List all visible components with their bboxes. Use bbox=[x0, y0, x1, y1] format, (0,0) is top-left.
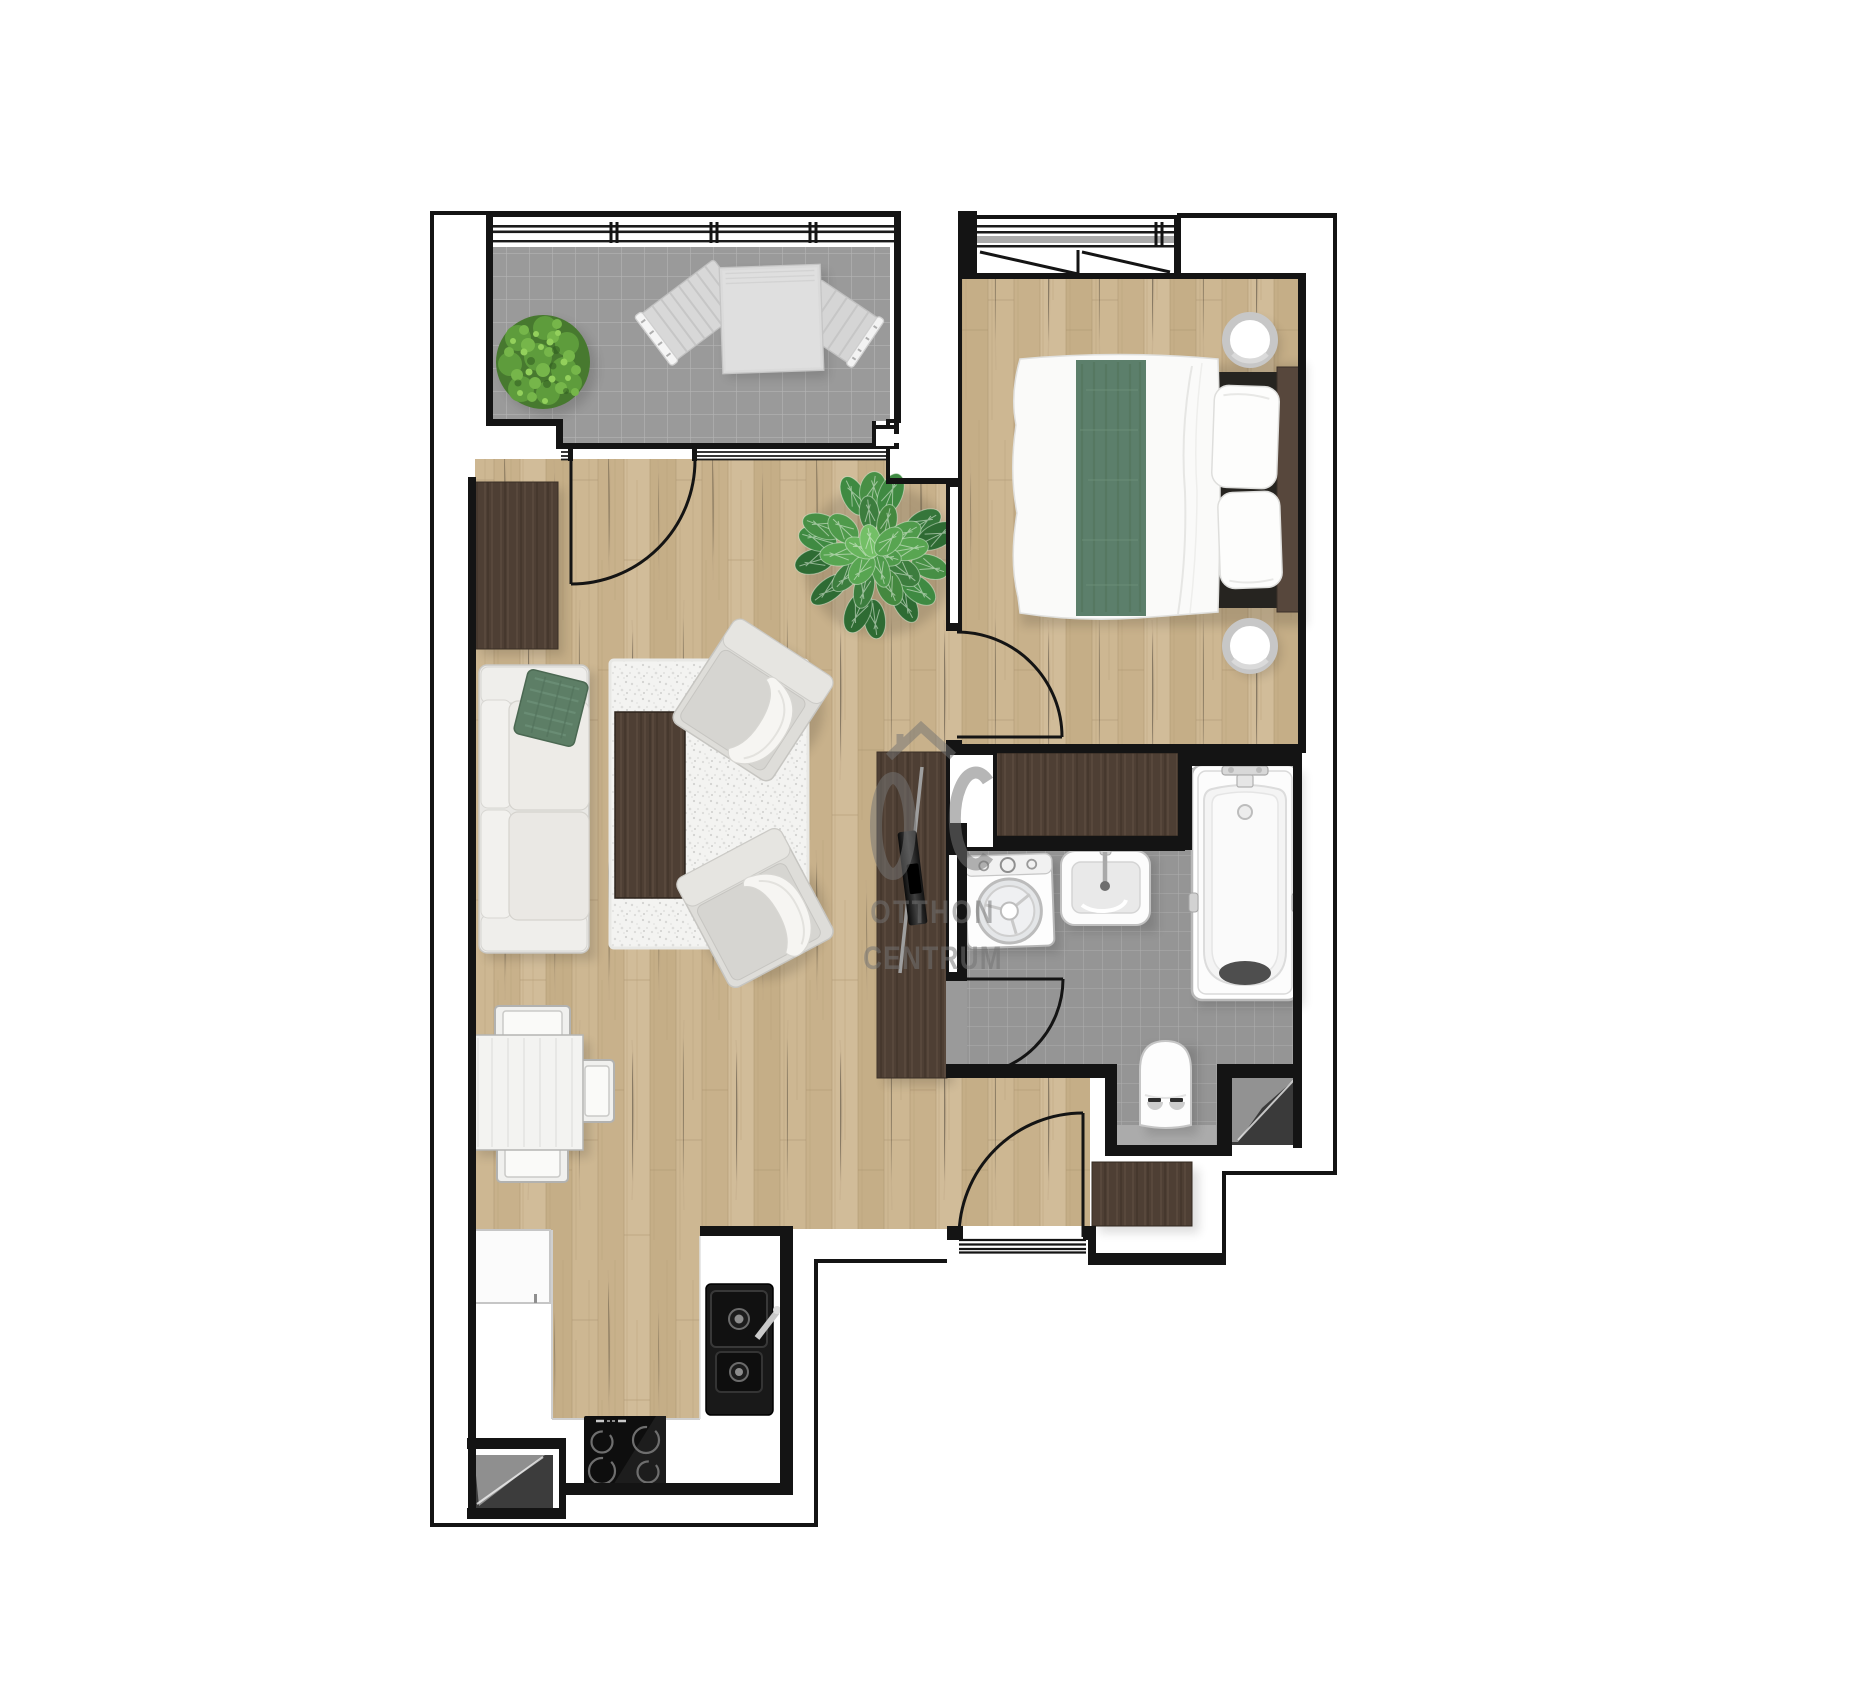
svg-text:CENTRUM: CENTRUM bbox=[863, 942, 1003, 977]
svg-text:OTTHON: OTTHON bbox=[870, 896, 995, 931]
